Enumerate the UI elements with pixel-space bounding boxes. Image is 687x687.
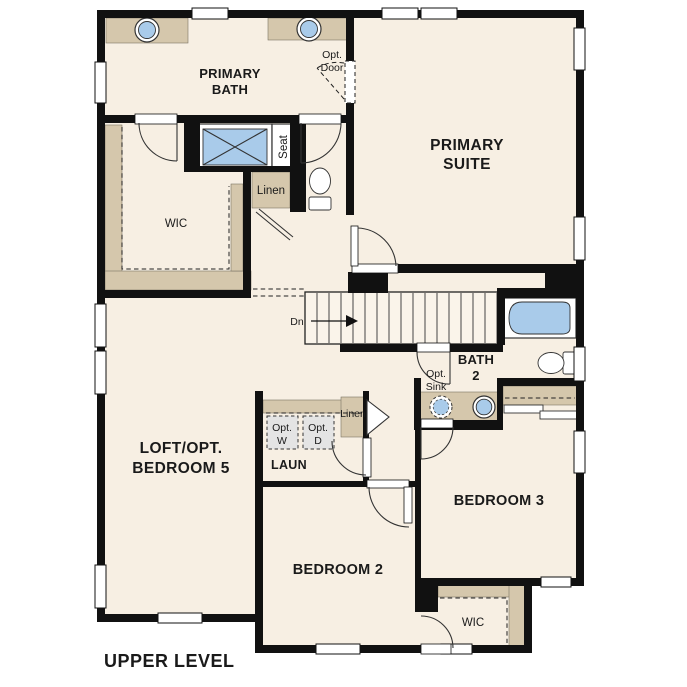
label-primary-bath-1: PRIMARY (199, 66, 261, 81)
wic-bedroom2-shelf-right (509, 584, 526, 646)
label-primary-suite-2: SUITE (443, 156, 491, 173)
tub-bath2 (509, 302, 570, 334)
window-top-suite-2 (421, 8, 457, 19)
toilet-primary-bowl (310, 168, 331, 194)
opening-wic-bedroom2 (421, 644, 451, 654)
plan-title: UPPER LEVEL (104, 651, 235, 671)
window-left-bath (95, 62, 106, 103)
window-top-suite-1 (382, 8, 418, 19)
closet-bypass-door-2 (540, 411, 577, 419)
label-opt-dryer-1: Opt. (308, 422, 328, 434)
sink-bath2-basin (476, 399, 492, 415)
window-right-bath2 (574, 347, 585, 381)
label-loft-1: LOFT/OPT. (140, 440, 223, 457)
label-primary-bath-2: BATH (212, 82, 248, 97)
opening-primary-suite (352, 264, 398, 273)
optional-door-opening (345, 61, 355, 103)
toilet-bath2-bowl (538, 353, 564, 374)
window-left-loft-1 (95, 304, 106, 347)
opening-bedroom3 (421, 419, 453, 428)
label-opt-door-1: Opt. (322, 49, 342, 61)
window-left-loft-2 (95, 351, 106, 394)
opening-bedroom2 (367, 480, 409, 488)
label-wic-bedroom2: WIC (462, 617, 484, 629)
closet-bypass-door-1 (504, 405, 543, 413)
label-linen-primary: Linen (257, 185, 285, 197)
wic-primary-shelf-bottom (105, 271, 251, 290)
stairs (305, 292, 503, 344)
label-opt-door-2: Door (321, 62, 344, 74)
door-leaf-primary-suite (351, 226, 358, 266)
label-opt-washer-2: W (277, 435, 287, 447)
label-bath2-1: BATH (458, 352, 494, 367)
bedroom3-closet-shelf (503, 386, 577, 405)
toilet-primary-tank (309, 197, 331, 210)
opening-wic-primary (135, 114, 177, 124)
label-opt-sink-1: Opt. (426, 368, 446, 380)
wic-primary-shelf-right (231, 184, 243, 271)
opening-toilet-room (299, 114, 341, 124)
window-bottom-bedroom2 (316, 644, 360, 654)
label-opt-washer-1: Opt. (272, 422, 292, 434)
label-opt-sink-2: Sink (426, 381, 447, 393)
label-bedroom2: BEDROOM 2 (293, 562, 384, 578)
sink-primary-left-basin (139, 22, 156, 39)
label-bath2-2: 2 (472, 368, 480, 383)
label-opt-dryer-2: D (314, 435, 322, 447)
window-bottom-bedroom3 (541, 577, 571, 587)
label-wic-primary: WIC (165, 218, 187, 230)
window-right-suite-1 (574, 28, 585, 70)
window-bottom-loft (158, 613, 202, 623)
floor-plan-svg: PRIMARY BATH Opt. Door PRIMARY SUITE Sea… (0, 0, 687, 687)
label-primary-suite-1: PRIMARY (430, 137, 504, 154)
floor-plan-canvas: PRIMARY BATH Opt. Door PRIMARY SUITE Sea… (0, 0, 687, 687)
window-right-suite-2 (574, 217, 585, 260)
window-left-loft-3 (95, 565, 106, 608)
label-linen-laundry: Linen (340, 408, 366, 420)
label-seat: Seat (278, 134, 290, 158)
opening-laundry (363, 438, 371, 477)
sink-primary-right-basin (301, 21, 318, 38)
window-top-bath (192, 8, 228, 19)
optional-sink-bath2-basin (433, 399, 449, 415)
wic-primary-shelf-left (105, 125, 122, 291)
window-right-bedroom3 (574, 431, 585, 473)
label-bedroom3: BEDROOM 3 (454, 493, 545, 509)
door-leaf-bedroom2 (404, 487, 412, 523)
opening-bath2 (417, 343, 450, 352)
label-loft-2: BEDROOM 5 (132, 460, 229, 477)
label-stairs-dn: Dn (290, 316, 304, 328)
label-laundry: LAUN (271, 458, 307, 472)
